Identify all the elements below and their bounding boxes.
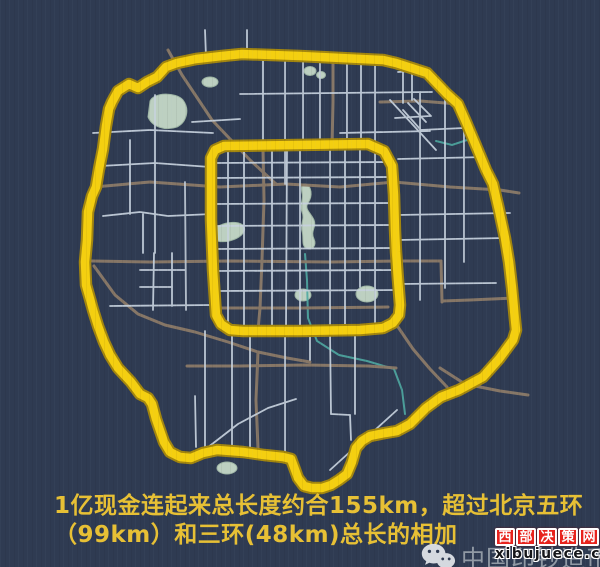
badge-char: 策 — [558, 528, 578, 546]
wechat-icon — [420, 543, 456, 567]
caption-line-1: 1亿现金连起来总长度约合155km，超过北京五环 — [54, 492, 600, 521]
site-badge-name: 西 部 决 策 网 — [495, 528, 599, 546]
site-badge: 西 部 决 策 网 xibujuece.com — [495, 528, 599, 562]
beijing-map — [0, 0, 600, 567]
badge-char: 网 — [579, 528, 599, 546]
badge-char: 部 — [516, 528, 536, 546]
badge-char: 西 — [495, 528, 515, 546]
site-badge-domain: xibujuece.com — [495, 546, 599, 562]
badge-char: 决 — [537, 528, 557, 546]
infographic-canvas: 1亿现金连起来总长度约合155km，超过北京五环 （99km）和三环(48km)… — [0, 0, 600, 567]
